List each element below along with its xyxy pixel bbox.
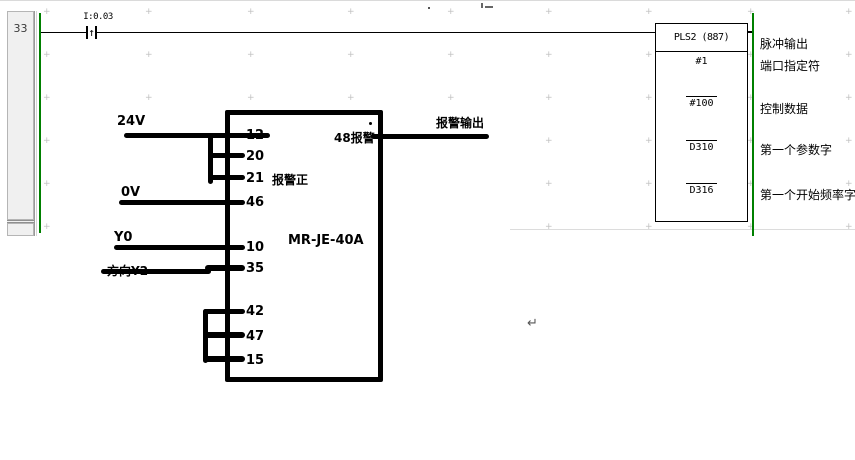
- label-24v: 24V: [117, 114, 145, 129]
- grid-plus-mark: +: [145, 52, 152, 59]
- grid-plus-mark: +: [43, 181, 50, 188]
- grid-plus-mark: +: [247, 9, 254, 16]
- grid-plus-mark: +: [545, 181, 552, 188]
- grid-plus-mark: +: [347, 52, 354, 59]
- pls2-operand-freq[interactable]: D316: [655, 183, 748, 196]
- grid-plus-mark: +: [645, 138, 652, 145]
- label-direction-y2: 方向Y2: [107, 262, 148, 279]
- grid-plus-mark: +: [545, 138, 552, 145]
- grid-plus-mark: +: [247, 95, 254, 102]
- grid-plus-mark: +: [247, 52, 254, 59]
- ui-remnant-glyph: [485, 6, 493, 8]
- label-y0: Y0: [114, 230, 132, 245]
- grid-plus-mark: +: [447, 52, 454, 59]
- desc-first-param: 第一个参数字: [760, 141, 832, 158]
- pin-10: 10: [246, 240, 264, 255]
- grid-plus-mark: +: [645, 224, 652, 231]
- desc-pulse-output: 脉冲输出: [760, 35, 808, 52]
- pls2-operand-port[interactable]: #1: [655, 56, 748, 67]
- device-model-label: MR-JE-40A: [288, 233, 364, 248]
- paragraph-return-icon: ↵: [527, 316, 538, 331]
- rung-margin-cell-next[interactable]: [7, 223, 34, 236]
- wire-pin15-stub: [203, 356, 245, 362]
- pls2-title: PLS2 (887): [655, 23, 748, 52]
- right-power-rail: [752, 13, 754, 236]
- pin-47: 47: [246, 329, 264, 344]
- pin-35: 35: [246, 261, 264, 276]
- grid-plus-mark: +: [545, 52, 552, 59]
- grid-plus-mark: +: [645, 9, 652, 16]
- rung-number: 33: [7, 22, 34, 35]
- grid-plus-mark: +: [545, 224, 552, 231]
- wire-pin42-stub: [203, 309, 245, 314]
- ladder-editor-screen: ++++++++++++++++++++++++++++++++++++++++…: [0, 0, 855, 460]
- grid-plus-mark: +: [447, 9, 454, 16]
- top-separator-line: [0, 0, 855, 1]
- wire-0v: [119, 200, 245, 205]
- pls2-operand-control[interactable]: #100: [655, 96, 748, 109]
- grid-plus-mark: +: [43, 9, 50, 16]
- grid-plus-mark: +: [645, 95, 652, 102]
- ink-dot: [369, 122, 372, 125]
- grid-plus-mark: +: [43, 52, 50, 59]
- rung-margin-cell[interactable]: [7, 11, 34, 220]
- contact-address-label: I:0.03: [80, 12, 116, 22]
- wiring-diagram-image: 12 20 21 46 10 35 42 47 15 24V 0V Y0 方向Y…: [98, 104, 510, 434]
- grid-plus-mark: +: [145, 9, 152, 16]
- pls2-operand-param[interactable]: D310: [655, 140, 748, 153]
- grid-plus-mark: +: [43, 95, 50, 102]
- desc-control-data: 控制数据: [760, 100, 808, 117]
- grid-plus-mark: +: [43, 224, 50, 231]
- grid-plus-mark: +: [645, 52, 652, 59]
- desc-port-designator: 端口指定符: [760, 57, 820, 74]
- grid-plus-mark: +: [845, 9, 852, 16]
- grid-plus-mark: +: [545, 95, 552, 102]
- pin-21: 21: [246, 171, 264, 186]
- pin-12: 12: [246, 128, 264, 143]
- grid-plus-mark: +: [845, 138, 852, 145]
- wire-pin21-stub: [208, 175, 245, 180]
- grid-plus-mark: +: [845, 224, 852, 231]
- grid-plus-mark: +: [645, 181, 652, 188]
- rising-edge-arrow-icon: ↑: [87, 26, 96, 39]
- grid-plus-mark: +: [447, 95, 454, 102]
- grid-plus-mark: +: [145, 95, 152, 102]
- left-power-rail: [39, 13, 41, 233]
- ui-remnant-dot: [428, 7, 430, 9]
- margin-groove: [34, 11, 35, 236]
- wire-pin20-stub: [208, 153, 245, 158]
- margin-groove-highlight: [36, 11, 37, 236]
- ui-remnant-glyph: [481, 3, 483, 8]
- wire-direction-y2-b: [205, 265, 245, 271]
- rung-wire: [97, 32, 656, 33]
- label-0v: 0V: [121, 185, 140, 200]
- grid-plus-mark: +: [43, 138, 50, 145]
- label-alarm-48: 48报警: [334, 129, 375, 146]
- pin-46: 46: [246, 195, 264, 210]
- pin-42: 42: [246, 304, 264, 319]
- pin-15: 15: [246, 353, 264, 368]
- rung-wire: [41, 32, 86, 33]
- grid-plus-mark: +: [347, 9, 354, 16]
- desc-first-freq: 第一个开始频率字: [760, 186, 855, 203]
- pin-20: 20: [246, 149, 264, 164]
- label-alarm-output: 报警输出: [436, 114, 484, 131]
- wire-pin47-stub: [203, 332, 245, 338]
- grid-plus-mark: +: [845, 95, 852, 102]
- grid-plus-mark: +: [545, 9, 552, 16]
- grid-plus-mark: +: [347, 95, 354, 102]
- grid-plus-mark: +: [845, 52, 852, 59]
- wire-alarm-output: [371, 134, 489, 139]
- label-alarm-positive: 报警正: [272, 171, 308, 188]
- wire-y0: [114, 245, 245, 250]
- rung-separator-line: [507, 229, 855, 230]
